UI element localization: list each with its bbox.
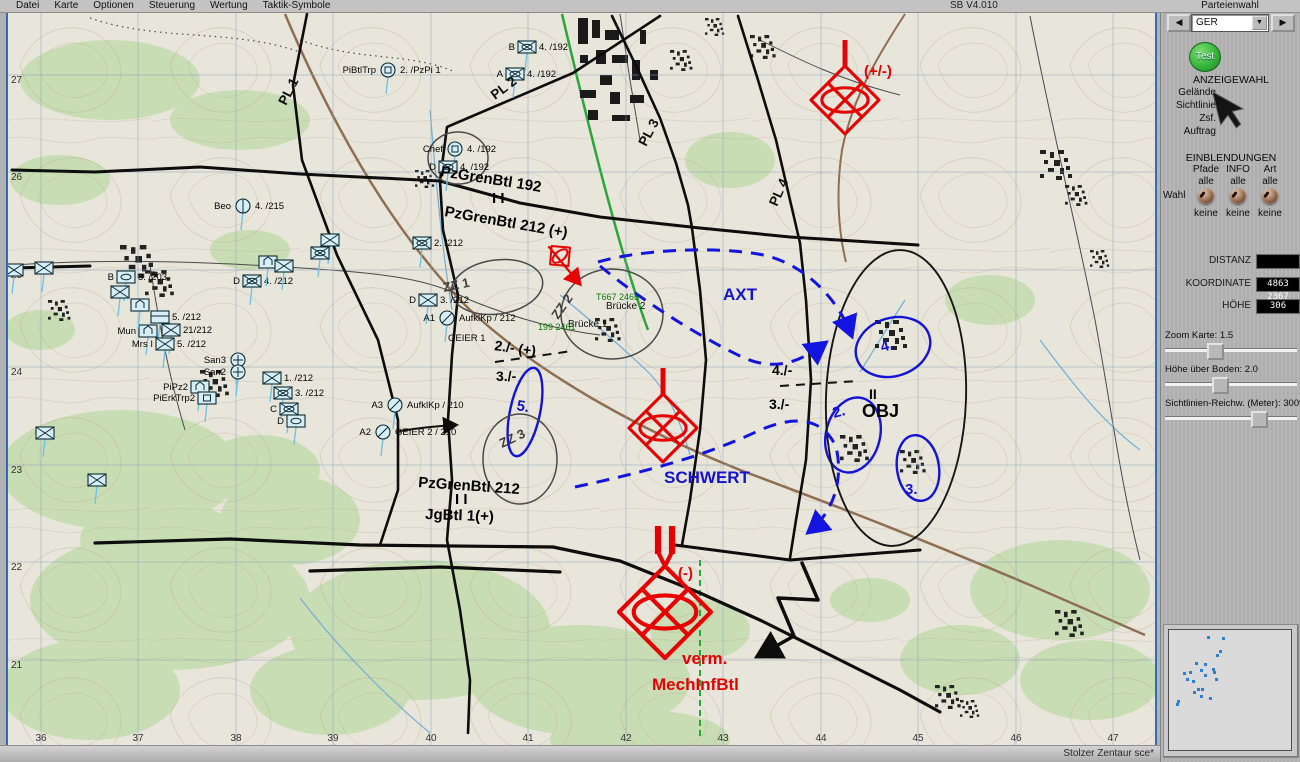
svg-text:26: 26: [11, 172, 23, 183]
anzeige-option-gelnde[interactable]: Gelände: [1161, 86, 1216, 99]
höhe-label: HÖHE: [1161, 300, 1251, 311]
koordinate-display: 4863 2367: [1256, 277, 1300, 292]
svg-text:41: 41: [522, 733, 534, 744]
map-label: T667 2465: [596, 292, 639, 302]
svg-text:B: B: [509, 42, 515, 53]
menu-item-datei[interactable]: Datei: [16, 0, 39, 12]
minimap-unit-dot: [1204, 663, 1207, 666]
svg-text:D: D: [409, 295, 416, 306]
map-label: (-): [678, 565, 693, 582]
svg-text:44: 44: [815, 733, 827, 744]
map-label: 3./-: [769, 396, 790, 412]
minimap-unit-dot: [1176, 703, 1179, 706]
svg-text:4. /192: 4. /192: [527, 69, 556, 80]
svg-text:5. /212: 5. /212: [172, 312, 201, 323]
einb-alle-art: alle: [1254, 176, 1286, 187]
svg-text:Mun: Mun: [118, 326, 136, 337]
svg-text:PiPz2: PiPz2: [163, 382, 188, 393]
svg-text:D: D: [429, 162, 436, 173]
map-svg: 36373839404142434445464727262524232221 B…: [8, 12, 1155, 745]
svg-text:B: B: [108, 272, 114, 283]
party-next-button[interactable]: ▶: [1271, 14, 1295, 32]
distanz-label: DISTANZ: [1161, 255, 1251, 266]
version-label: SB V4.010: [950, 0, 998, 12]
minimap-unit-dot: [1183, 672, 1186, 675]
svg-text:46: 46: [1010, 733, 1022, 744]
svg-text:San2: San2: [204, 367, 226, 378]
svg-text:45: 45: [912, 733, 924, 744]
slider-label-2: Sichtlinien-Reichw. (Meter): 3009: [1165, 398, 1300, 409]
svg-text:GEIER 2 / 210: GEIER 2 / 210: [395, 427, 456, 438]
svg-text:3. /212: 3. /212: [295, 388, 324, 399]
dropdown-arrow-icon[interactable]: ▼: [1252, 16, 1267, 30]
anzeige-option-zsf[interactable]: Zsf.: [1161, 112, 1216, 125]
application-window: DateiKarteOptionenSteuerungWertungTaktik…: [0, 0, 1300, 762]
einb-alle-pfade: alle: [1190, 176, 1222, 187]
terrain-layer: [8, 12, 1155, 745]
einb-knob-pfade[interactable]: [1198, 188, 1214, 204]
svg-text:2. /PzPi 1: 2. /PzPi 1: [400, 65, 441, 76]
map-label: SCHWERT: [664, 468, 751, 487]
menu-item-taktik-symbole[interactable]: Taktik-Symbole: [263, 0, 331, 12]
minimap-unit-dot: [1193, 691, 1196, 694]
minimap-unit-dot: [1215, 678, 1218, 681]
svg-text:47: 47: [1107, 733, 1119, 744]
svg-text:3. /212: 3. /212: [440, 295, 469, 306]
test-button[interactable]: Test: [1189, 42, 1221, 72]
svg-text:43: 43: [717, 733, 729, 744]
anzeigewahl-title: ANZEIGEWAHL: [1161, 74, 1300, 86]
svg-text:4. /192: 4. /192: [539, 42, 568, 53]
menu-item-optionen[interactable]: Optionen: [93, 0, 134, 12]
party-dropdown-value: GER: [1196, 17, 1218, 28]
svg-text:D: D: [233, 276, 240, 287]
map-label: JgBtl 1(+): [425, 506, 494, 525]
menu-items: DateiKarteOptionenSteuerungWertungTaktik…: [16, 0, 330, 12]
map-label: 4./-: [772, 362, 793, 378]
slider-label-1: Höhe über Boden: 2.0: [1165, 364, 1258, 375]
minimap-unit-dot: [1192, 680, 1195, 683]
svg-text:2. /212: 2. /212: [434, 238, 463, 249]
svg-text:1. /212: 1. /212: [284, 373, 313, 384]
slider-label-0: Zoom Karte: 1.5: [1165, 330, 1233, 341]
svg-text:D: D: [277, 416, 284, 427]
svg-text:4. /212: 4. /212: [264, 276, 293, 287]
map-label: I I: [455, 491, 468, 508]
map-label: II: [869, 386, 877, 402]
svg-text:A3: A3: [371, 400, 383, 411]
svg-text:4. /215: 4. /215: [255, 201, 284, 212]
map-canvas[interactable]: 36373839404142434445464727262524232221 B…: [8, 12, 1155, 745]
minimap-unit-dot: [1197, 688, 1200, 691]
einb-knob-info[interactable]: [1230, 188, 1246, 204]
svg-text:42: 42: [620, 733, 632, 744]
svg-text:A2: A2: [359, 427, 371, 438]
minimap-unit-dot: [1186, 678, 1189, 681]
slider-handle-1[interactable]: [1212, 377, 1229, 394]
party-prev-button[interactable]: ◀: [1167, 14, 1191, 32]
svg-text:27: 27: [11, 75, 23, 86]
svg-text:A1: A1: [423, 313, 435, 324]
svg-text:C: C: [270, 404, 277, 415]
einb-alle-info: alle: [1222, 176, 1254, 187]
svg-text:21: 21: [11, 660, 23, 671]
menu-bar: DateiKarteOptionenSteuerungWertungTaktik…: [0, 0, 1300, 13]
einb-knob-art[interactable]: [1262, 188, 1278, 204]
map-label: MechInfBtl: [652, 675, 739, 694]
svg-text:PiErkTrp2: PiErkTrp2: [153, 393, 195, 404]
svg-text:24: 24: [11, 367, 23, 378]
minimap-unit-dot: [1209, 697, 1212, 700]
slider-handle-2[interactable]: [1251, 411, 1268, 428]
svg-text:37: 37: [132, 733, 144, 744]
svg-text:22: 22: [11, 562, 23, 573]
svg-text:3. /203: 3. /203: [138, 272, 167, 283]
map-label: 3.: [905, 481, 918, 498]
distanz-display: [1256, 254, 1300, 269]
map-label: GEIER 1: [448, 333, 486, 344]
svg-text:Chef: Chef: [423, 144, 443, 155]
einb-keine-info: keine: [1222, 208, 1254, 219]
anzeige-option-sichtlinie[interactable]: Sichtlinie: [1161, 99, 1216, 112]
svg-text:36: 36: [35, 733, 47, 744]
map-label: (+/-): [864, 63, 892, 80]
svg-text:38: 38: [230, 733, 242, 744]
einblendungen-title: EINBLENDUNGEN: [1161, 152, 1300, 164]
einb-col-info: INFO: [1222, 164, 1254, 175]
minimap-unit-dot: [1189, 671, 1192, 674]
map-label: 199 2461: [538, 322, 576, 332]
minimap-inner[interactable]: [1168, 629, 1292, 751]
slider-handle-0[interactable]: [1207, 343, 1224, 360]
mouse-cursor-icon: [1213, 88, 1249, 132]
svg-text:San3: San3: [204, 355, 226, 366]
minimap-unit-dot: [1201, 688, 1204, 691]
svg-text:Beo: Beo: [214, 201, 231, 212]
slider-track-0[interactable]: [1165, 348, 1297, 352]
minimap-unit-dot: [1200, 669, 1203, 672]
minimap-unit-dot: [1204, 674, 1207, 677]
map-label: Brücke 2: [606, 301, 646, 312]
svg-text:4. /192: 4. /192: [467, 144, 496, 155]
koordinate-label: KOORDINATE: [1161, 278, 1251, 289]
minimap-unit-dot: [1219, 650, 1222, 653]
menu-item-wertung[interactable]: Wertung: [210, 0, 248, 12]
menu-item-karte[interactable]: Karte: [54, 0, 78, 12]
svg-text:PiBtlTrp: PiBtlTrp: [343, 65, 376, 76]
svg-text:40: 40: [425, 733, 437, 744]
minimap-unit-dot: [1207, 636, 1210, 639]
svg-text:5. /212: 5. /212: [177, 339, 206, 350]
anzeige-option-auftrag[interactable]: Auftrag: [1161, 125, 1216, 138]
map-label: I I: [492, 190, 505, 207]
einb-keine-art: keine: [1254, 208, 1286, 219]
menu-item-steuerung[interactable]: Steuerung: [149, 0, 195, 12]
status-bar: Stolzer Zentaur sce*: [0, 745, 1160, 762]
minimap-unit-dot: [1200, 695, 1203, 698]
einb-col-pfade: Pfade: [1190, 164, 1222, 175]
slider-track-2[interactable]: [1165, 416, 1297, 420]
map-label: 3./-: [496, 368, 517, 384]
map-label: OBJ: [862, 401, 899, 421]
svg-text:AufklKp / 210: AufklKp / 210: [407, 400, 464, 411]
svg-text:21/212: 21/212: [183, 325, 212, 336]
minimap-unit-dot: [1216, 654, 1219, 657]
map-label: AXT: [723, 285, 758, 304]
wahl-label: Wahl: [1163, 190, 1185, 201]
minimap-unit-dot: [1222, 637, 1225, 640]
einb-col-art: Art: [1254, 164, 1286, 175]
svg-text:AufklKp / 212: AufklKp / 212: [459, 313, 516, 324]
einb-keine-pfade: keine: [1190, 208, 1222, 219]
map-label: verm.: [682, 649, 727, 668]
slider-track-1[interactable]: [1165, 382, 1297, 386]
svg-text:Mrs I: Mrs I: [132, 339, 153, 350]
scenario-name: Stolzer Zentaur sce*: [1063, 748, 1154, 759]
höhe-display: 306: [1256, 299, 1300, 314]
höhe-value: 306: [1257, 300, 1299, 313]
minimap-unit-dot: [1213, 671, 1216, 674]
minimap-unit-dot: [1195, 662, 1198, 665]
party-selection-label: Parteienwahl: [1160, 0, 1300, 12]
svg-text:39: 39: [327, 733, 339, 744]
minimap[interactable]: [1163, 624, 1299, 758]
control-panel: ◀ GER ▼ ▶ Test ANZEIGEWAHL GeländeSichtl…: [1160, 12, 1300, 762]
anzeigewahl-list: GeländeSichtlinieZsf.Auftrag: [1161, 86, 1216, 138]
party-dropdown[interactable]: GER ▼: [1191, 14, 1269, 32]
svg-text:23: 23: [11, 465, 23, 476]
